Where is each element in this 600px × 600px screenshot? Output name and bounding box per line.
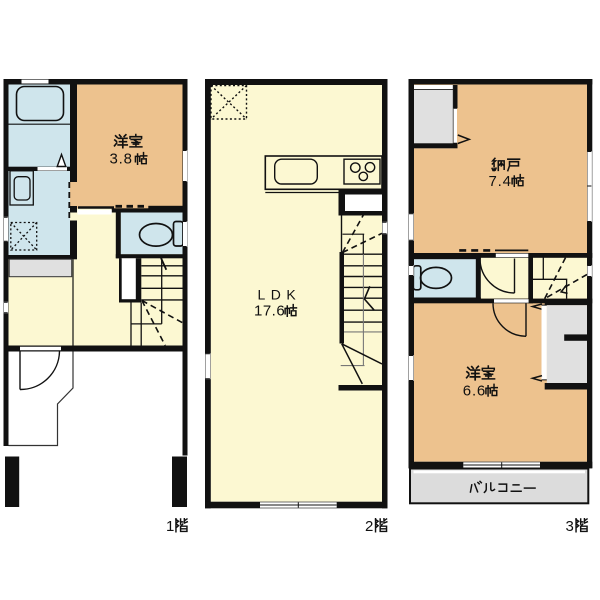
svg-text:3.8: 3.8 <box>110 151 133 168</box>
svg-text:1: 1 <box>166 518 174 535</box>
svg-text:2: 2 <box>365 518 373 535</box>
svg-text:17.6: 17.6 <box>254 303 285 320</box>
svg-text:LDK: LDK <box>258 287 302 303</box>
svg-text:3: 3 <box>566 518 574 535</box>
svg-text:7.4: 7.4 <box>489 173 512 190</box>
svg-text:6.6: 6.6 <box>463 383 486 400</box>
